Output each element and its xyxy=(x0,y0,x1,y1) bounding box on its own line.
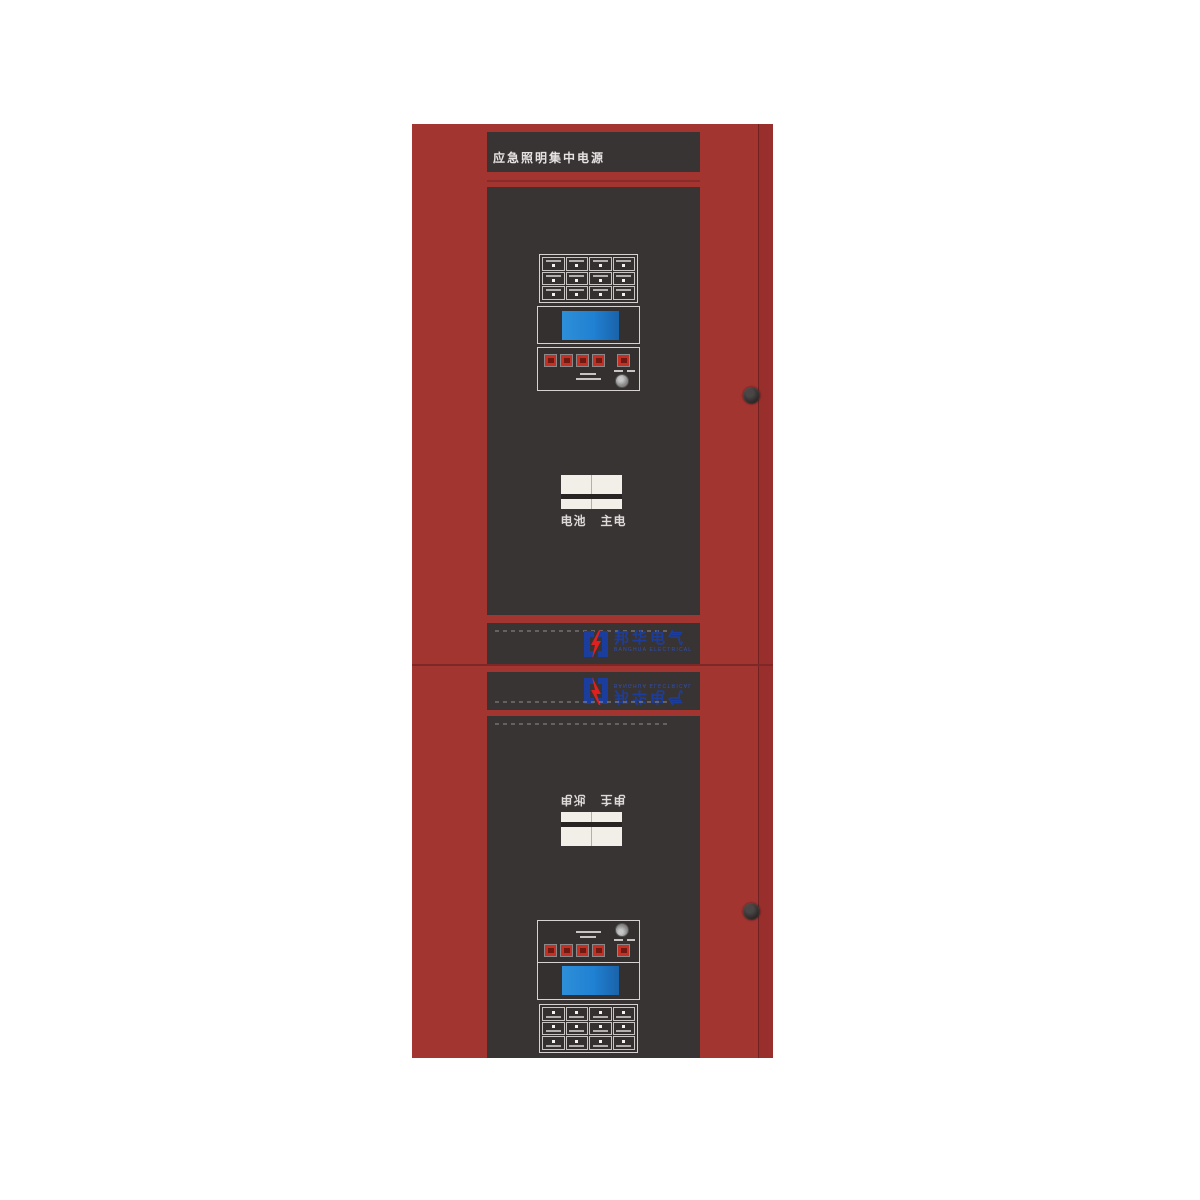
indicator-led xyxy=(622,279,625,282)
red-function-button xyxy=(617,354,630,367)
brand-name-cn: 邦华电气 xyxy=(614,688,692,705)
micro-text xyxy=(627,370,635,372)
red-function-button xyxy=(560,354,573,367)
micro-text xyxy=(569,1016,584,1018)
button-glyph xyxy=(621,358,627,363)
indicator-button-cell xyxy=(566,257,589,271)
button-glyph xyxy=(564,358,570,363)
indicator-button-cell xyxy=(613,1007,636,1021)
indicator-led xyxy=(622,1040,625,1043)
indicator-led xyxy=(622,293,625,296)
lcd-screen xyxy=(562,311,619,340)
upper-lcd-module xyxy=(537,306,640,344)
red-function-button xyxy=(544,354,557,367)
button-glyph xyxy=(596,948,602,953)
red-function-button xyxy=(592,354,605,367)
upper-door-lock xyxy=(743,387,760,404)
red-function-button xyxy=(544,944,557,957)
indicator-led xyxy=(552,1025,555,1028)
micro-text xyxy=(593,1030,608,1032)
button-glyph xyxy=(580,948,586,953)
indicator-led xyxy=(575,293,578,296)
indicator-led xyxy=(599,1011,602,1014)
logo-band-upper: 邦华电气 BANGHUA ELECTRICAL xyxy=(487,623,700,665)
micro-text xyxy=(569,1030,584,1032)
button-glyph xyxy=(548,948,554,953)
indicator-button-cell xyxy=(613,1036,636,1050)
micro-text xyxy=(576,931,601,933)
red-function-button xyxy=(576,354,589,367)
brand-name-en: BANGHUA ELECTRICAL xyxy=(614,682,692,688)
upper-door-panel: 电池主电 xyxy=(487,187,700,615)
button-glyph xyxy=(564,948,570,953)
micro-text xyxy=(614,370,623,372)
red-function-button xyxy=(560,944,573,957)
micro-text xyxy=(580,936,596,938)
indicator-led xyxy=(575,1011,578,1014)
indicator-button-cell xyxy=(613,1022,636,1036)
micro-text xyxy=(616,275,631,277)
cabinet-right-edge xyxy=(758,124,773,1058)
micro-text xyxy=(593,1045,608,1047)
button-glyph xyxy=(580,358,586,363)
key-switch-knob xyxy=(615,374,629,388)
brand-wordmark: 邦华电气 BANGHUA ELECTRICAL xyxy=(614,630,692,653)
indicator-led xyxy=(552,264,555,267)
micro-text xyxy=(569,260,584,262)
lcd-screen xyxy=(562,966,619,995)
indicator-button-cell xyxy=(566,1022,589,1036)
indicator-button-cell xyxy=(566,1036,589,1050)
header-divider xyxy=(487,180,700,182)
button-glyph xyxy=(596,358,602,363)
micro-text xyxy=(569,275,584,277)
micro-text xyxy=(546,275,561,277)
micro-text xyxy=(616,1016,631,1018)
lightning-bolt-logo-icon xyxy=(583,677,609,705)
button-glyph xyxy=(621,948,627,953)
micro-text xyxy=(569,1045,584,1047)
lightning-bolt-logo-icon xyxy=(583,630,609,658)
upper-breaker-switches xyxy=(561,475,622,509)
brand-logo-mirrored: 邦华电气 BANGHUA ELECTRICAL xyxy=(583,677,692,705)
lower-breaker-switches xyxy=(561,812,622,846)
battery-label: 电池 xyxy=(560,514,586,528)
indicator-led xyxy=(552,1011,555,1014)
mains-breaker-switch xyxy=(591,475,622,509)
micro-text xyxy=(616,1045,631,1047)
indicator-led xyxy=(622,264,625,267)
indicator-led xyxy=(552,279,555,282)
indicator-led xyxy=(622,1025,625,1028)
indicator-led xyxy=(575,1025,578,1028)
micro-text xyxy=(593,275,608,277)
logo-band-lower-mirrored: 邦华电气 BANGHUA ELECTRICAL xyxy=(487,672,700,710)
battery-breaker-switch xyxy=(561,475,591,509)
indicator-button-cell xyxy=(566,1007,589,1021)
brand-name-cn: 邦华电气 xyxy=(614,630,692,647)
battery-label: 电池 xyxy=(560,793,586,807)
micro-text xyxy=(616,260,631,262)
rocker-band xyxy=(561,494,622,499)
micro-text xyxy=(546,1016,561,1018)
indicator-led xyxy=(599,1025,602,1028)
cabinet-header-bar: 应急照明集中电源 xyxy=(487,132,700,172)
indicator-button-cell xyxy=(542,257,565,271)
button-glyph xyxy=(548,358,554,363)
lower-door-lock xyxy=(743,903,760,920)
mains-breaker-switch xyxy=(591,812,622,846)
mirror-seam-line xyxy=(412,664,773,666)
indicator-button-cell xyxy=(613,257,636,271)
rocker-band xyxy=(561,822,622,827)
indicator-button-cell xyxy=(613,272,636,286)
micro-text xyxy=(580,373,596,375)
upper-indicator-button-grid xyxy=(539,254,638,303)
indicator-button-cell xyxy=(589,1036,612,1050)
upper-control-panel xyxy=(537,347,640,391)
breaker-labels-mirrored: 电池主电 xyxy=(487,792,700,809)
indicator-led xyxy=(552,293,555,296)
micro-text xyxy=(546,289,561,291)
indicator-button-cell xyxy=(589,257,612,271)
brand-wordmark: 邦华电气 BANGHUA ELECTRICAL xyxy=(614,682,692,705)
indicator-button-cell xyxy=(613,286,636,300)
indicator-button-cell xyxy=(589,1022,612,1036)
indicator-button-cell xyxy=(542,286,565,300)
indicator-led xyxy=(575,1040,578,1043)
micro-text xyxy=(593,1016,608,1018)
indicator-button-cell xyxy=(589,286,612,300)
indicator-button-cell xyxy=(566,272,589,286)
micro-text xyxy=(614,939,623,941)
red-function-button xyxy=(576,944,589,957)
indicator-led xyxy=(599,293,602,296)
micro-text xyxy=(546,1030,561,1032)
cabinet-title: 应急照明集中电源 xyxy=(487,149,605,172)
indicator-led xyxy=(575,279,578,282)
product-photo: 应急照明集中电源 xyxy=(0,0,1200,1200)
battery-breaker-switch xyxy=(561,812,591,846)
indicator-button-cell xyxy=(542,1007,565,1021)
micro-text xyxy=(546,1045,561,1047)
indicator-button-cell xyxy=(542,1022,565,1036)
micro-text xyxy=(546,260,561,262)
micro-text xyxy=(593,289,608,291)
red-function-button xyxy=(592,944,605,957)
lower-control-panel xyxy=(537,920,640,964)
micro-text xyxy=(616,289,631,291)
indicator-led xyxy=(552,1040,555,1043)
indicator-button-cell xyxy=(542,1036,565,1050)
mains-label: 主电 xyxy=(601,793,627,807)
micro-text xyxy=(616,1030,631,1032)
indicator-led xyxy=(622,1011,625,1014)
brand-logo: 邦华电气 BANGHUA ELECTRICAL xyxy=(583,630,692,658)
indicator-led xyxy=(599,264,602,267)
micro-text xyxy=(576,378,601,380)
micro-text xyxy=(593,260,608,262)
indicator-button-cell xyxy=(589,1007,612,1021)
brand-name-en: BANGHUA ELECTRICAL xyxy=(614,647,692,653)
mains-label: 主电 xyxy=(601,514,627,528)
indicator-led xyxy=(599,1040,602,1043)
micro-text xyxy=(627,939,635,941)
indicator-led xyxy=(575,264,578,267)
breaker-labels: 电池主电 xyxy=(487,512,700,529)
power-supply-cabinet: 应急照明集中电源 xyxy=(412,124,773,1058)
lower-lcd-module xyxy=(537,962,640,1000)
micro-text xyxy=(569,289,584,291)
lower-indicator-button-grid xyxy=(539,1004,638,1053)
red-function-button xyxy=(617,944,630,957)
indicator-led xyxy=(599,279,602,282)
lower-door-panel-mirrored: 电池主电 xyxy=(487,716,700,1058)
key-switch-knob xyxy=(615,923,629,937)
indicator-button-cell xyxy=(566,286,589,300)
indicator-button-cell xyxy=(542,272,565,286)
indicator-button-cell xyxy=(589,272,612,286)
